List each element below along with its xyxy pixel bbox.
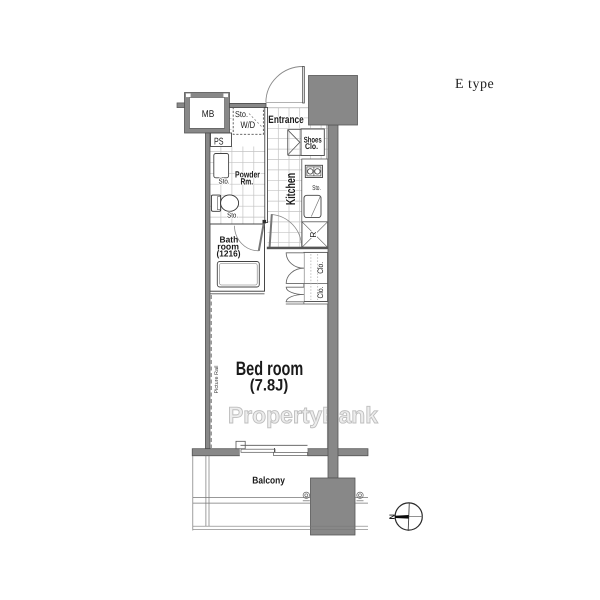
svg-text:Balcony: Balcony	[252, 475, 285, 486]
svg-text:Sto.: Sto.	[227, 211, 238, 220]
svg-text:Sto.: Sto.	[219, 177, 230, 186]
svg-text:(7.8J): (7.8J)	[250, 377, 289, 395]
svg-text:N: N	[387, 514, 396, 519]
svg-text:Sto.: Sto.	[235, 109, 248, 119]
svg-text:Entrance: Entrance	[268, 114, 303, 126]
svg-text:Kitchen: Kitchen	[283, 173, 298, 205]
svg-text:Clo.: Clo.	[316, 287, 325, 299]
svg-text:PropertyBank: PropertyBank	[228, 402, 378, 428]
svg-text:(1216): (1216)	[217, 249, 241, 259]
svg-text:W/D: W/D	[240, 120, 255, 131]
svg-text:E type: E type	[455, 77, 494, 92]
svg-text:Rm.: Rm.	[240, 176, 253, 186]
svg-text:Clo.: Clo.	[316, 262, 325, 274]
svg-text:R: R	[308, 232, 318, 238]
svg-text:Sto.: Sto.	[312, 185, 321, 192]
svg-text:PS: PS	[214, 136, 224, 147]
svg-text:Picture Rail: Picture Rail	[214, 366, 220, 394]
svg-text:MB: MB	[202, 109, 215, 120]
svg-text:Clo.: Clo.	[305, 141, 318, 151]
